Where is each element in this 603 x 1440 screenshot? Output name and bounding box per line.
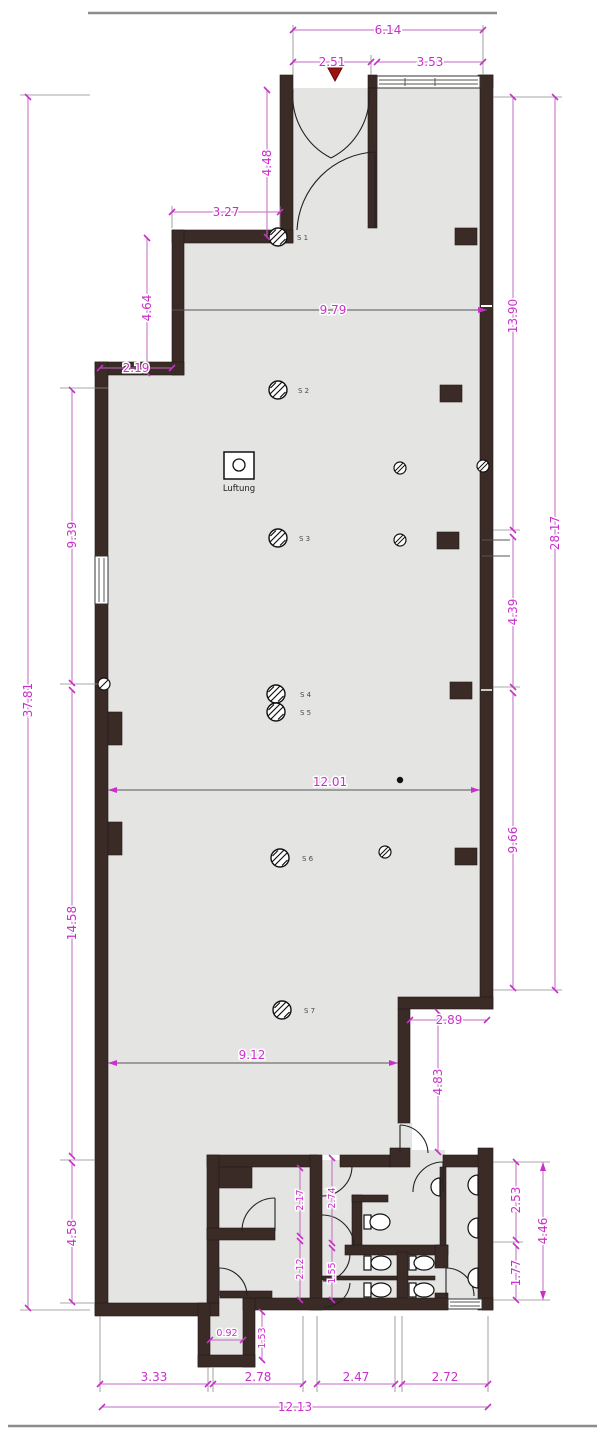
threshold — [220, 1291, 272, 1298]
column — [450, 682, 472, 699]
symbol-s2 — [269, 381, 287, 399]
dim-entry-width: 3.27 — [213, 205, 240, 219]
symbol-small — [477, 460, 489, 472]
floor-plan: S 1 S 2 S 3 S 4 S 5 S 6 S 7 Luftung — [0, 0, 603, 1440]
symbol-s5 — [267, 703, 285, 721]
dim-wc-room-upper: 2.17 — [295, 1189, 306, 1210]
entrance-marker — [328, 68, 342, 81]
label-s5: S 5 — [300, 709, 311, 717]
dim-bottom-1: 3.33 — [141, 1370, 168, 1384]
symbol-s3 — [269, 529, 287, 547]
dim-wc-mid-upper: 2.74 — [327, 1187, 338, 1208]
column — [440, 385, 462, 402]
dim-top-left: 2.51 — [319, 55, 346, 69]
column — [455, 848, 477, 865]
symbol-s6 — [271, 849, 289, 867]
vestibule-partition-wall — [368, 88, 377, 228]
dim-top-right: 3.53 — [417, 55, 444, 69]
dim-br-lower: 1.77 — [509, 1260, 523, 1287]
label-s7: S 7 — [304, 1007, 315, 1015]
label-ventilation: Luftung — [223, 484, 255, 494]
label-s4: S 4 — [300, 691, 312, 699]
wall-pilaster — [108, 712, 122, 745]
dim-entry-height: 4.48 — [260, 150, 274, 177]
dim-bottom-3: 2.47 — [343, 1370, 370, 1384]
symbol-s1 — [269, 228, 287, 246]
symbol-small — [379, 846, 391, 858]
dim-wc-room-lower: 2.12 — [295, 1258, 306, 1279]
dim-hall-lower: 9.12 — [239, 1048, 266, 1062]
dim-hall-width-top: 9.79 — [320, 303, 347, 317]
dim-right-mid: 4.39 — [506, 599, 520, 626]
dim-left-lower: 14.58 — [65, 906, 79, 940]
point-marker — [397, 777, 403, 783]
label-s3: S 3 — [299, 535, 310, 543]
dim-bottom-2: 2.78 — [245, 1370, 272, 1384]
dim-br-upper: 2.53 — [509, 1187, 523, 1214]
label-s1: S 1 — [297, 234, 308, 242]
dim-right-upper: 13.90 — [506, 299, 520, 333]
counter-block — [219, 1167, 252, 1188]
dim-notch-height: 4.83 — [431, 1069, 445, 1096]
bottom-window — [448, 1299, 482, 1309]
left-wall-window — [95, 556, 108, 604]
column — [455, 228, 477, 245]
dim-bump-height: 1.53 — [257, 1327, 268, 1348]
symbol-small — [394, 462, 406, 474]
storefront-window — [377, 76, 480, 88]
label-s2: S 2 — [298, 387, 309, 395]
dim-step-width: 2.19 — [123, 361, 150, 375]
dim-notch-width: 2.89 — [436, 1013, 463, 1027]
dim-top-total: 6.14 — [375, 23, 402, 37]
dim-right-total: 28.17 — [548, 516, 562, 550]
dim-bottom-4: 2.72 — [432, 1370, 459, 1384]
dim-left-bottom: 4.58 — [65, 1220, 79, 1247]
dim-br-total: 4.46 — [536, 1218, 550, 1245]
symbol-s7 — [273, 1001, 291, 1019]
symbol-s4 — [267, 685, 285, 703]
door-stop-symbol — [98, 678, 110, 690]
toilet — [409, 1256, 434, 1270]
toilet — [364, 1256, 391, 1270]
symbol-small — [394, 534, 406, 546]
label-s6: S 6 — [302, 855, 314, 863]
dim-bottom-total: 12.13 — [278, 1400, 312, 1414]
dim-left-total: 37.81 — [21, 683, 35, 717]
dim-right-lower: 9.66 — [506, 827, 520, 854]
dim-left-upper: 9.39 — [65, 522, 79, 549]
dim-bump-width: 0.92 — [216, 1328, 237, 1339]
dim-wc-mid-lower: 1.55 — [327, 1262, 338, 1283]
ventilation-symbol — [224, 452, 254, 479]
toilet — [364, 1214, 390, 1230]
floor-plan-canvas: S 1 S 2 S 3 S 4 S 5 S 6 S 7 Luftung — [0, 0, 603, 1440]
dim-step-height: 4.64 — [140, 295, 154, 322]
wall-pilaster — [108, 822, 122, 855]
column — [437, 532, 459, 549]
toilet — [364, 1283, 391, 1297]
toilet — [409, 1283, 434, 1297]
dim-hall-mid: 12.01 — [313, 775, 347, 789]
